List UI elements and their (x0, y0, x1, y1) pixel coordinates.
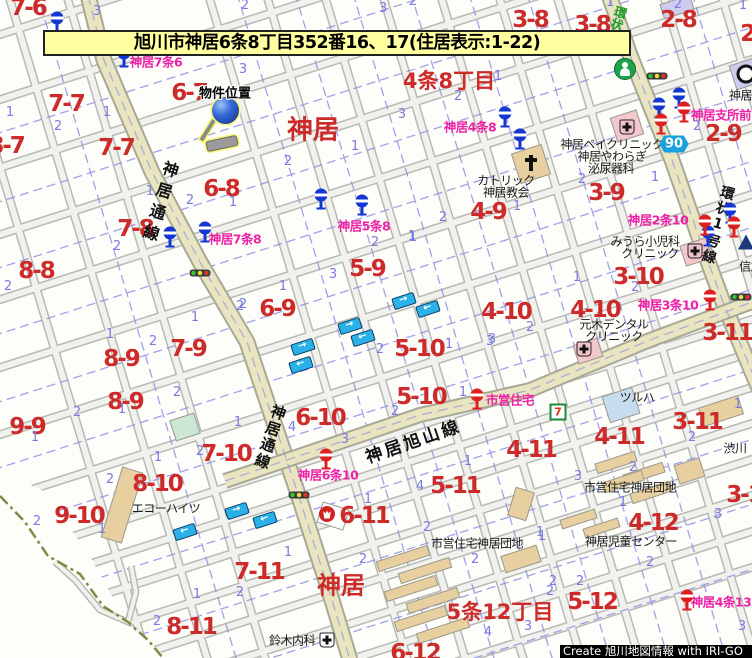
lot-number: 2 (578, 173, 586, 187)
lot-number: 3 (738, 620, 746, 634)
lot-number: 2 (33, 515, 41, 529)
lot-number: 3 (398, 108, 406, 122)
block-label: 7-11 (234, 560, 284, 584)
lot-number: 1 (538, 530, 546, 544)
block-label: 3-11 (702, 321, 752, 345)
district-label: 5条12丁目 (447, 601, 554, 623)
lot-number: 2 (73, 406, 81, 420)
block-label: 8-9 (103, 347, 139, 371)
lot-number: 2 (186, 194, 194, 208)
lot-number: 1 (234, 416, 242, 430)
lot-number: 3 (93, 5, 101, 19)
lot-number: 3 (574, 470, 582, 484)
lot-number: 1 (619, 496, 627, 510)
district-label: 神居 (287, 117, 339, 144)
block-label: 2-7 (740, 22, 752, 46)
block-label: 3-9 (588, 181, 624, 205)
lot-number: 1 (103, 106, 111, 120)
block-label: 4-9 (470, 200, 506, 224)
block-label: 6-12 (390, 641, 440, 658)
lot-number: 2 (284, 155, 292, 169)
busstop-label: 神居6条10 (298, 468, 359, 481)
lot-number: 2 (631, 281, 639, 295)
traffic-light-icon (289, 492, 310, 499)
bus-stop-red-icon (325, 449, 328, 470)
block-label: 5-10 (394, 337, 444, 361)
fire-station-icon (319, 506, 335, 522)
bus-stop-red-icon (476, 389, 479, 410)
lot-number: 4 (416, 480, 424, 494)
lot-number: 2 (526, 321, 534, 335)
lot-number: 1 (573, 271, 581, 285)
lot-number: 1 (146, 185, 154, 199)
lot-number: 2 (454, 90, 462, 104)
block-label: 4-11 (506, 438, 556, 462)
busstop-label: 市営住宅 (486, 393, 534, 406)
lot-number: 2 (674, 0, 682, 12)
lot-number: 2 (241, 0, 249, 13)
map-container[interactable]: 4条8丁目5条12丁目神居神居7-63-83-82-82-77-76-78-77… (0, 0, 752, 658)
bus-stop-blue-icon (707, 226, 710, 247)
lot-number: 1 (464, 455, 472, 469)
poi-label: 神居児童センター (585, 536, 677, 549)
block-label: 5-10 (396, 385, 446, 409)
bus-stop-red-icon (686, 590, 689, 611)
block-label: 4-12 (628, 511, 678, 535)
lot-number: 2 (371, 236, 379, 250)
lot-number: 1 (98, 523, 106, 537)
block-label: 3-8 (512, 8, 548, 32)
block-label: 7-7 (98, 136, 134, 160)
poi-label: クリニック (585, 331, 643, 344)
lot-number: 1 (494, 70, 502, 84)
busstop-label: 神居3条10 (638, 298, 699, 311)
lot-number: 1 (606, 0, 614, 10)
lot-number: 3 (239, 63, 247, 77)
lot-number: 2 (629, 461, 637, 475)
monument-triangle-icon (738, 235, 752, 250)
busstop-label: 神居4条13 (691, 595, 752, 608)
lot-number: 1 (364, 493, 372, 507)
park-icon (614, 58, 636, 80)
lot-number: 1 (31, 431, 39, 445)
lot-number: 2 (106, 473, 114, 487)
lot-number: 3 (329, 268, 337, 282)
lot-number: 1 (651, 171, 659, 185)
lot-number: 1 (279, 280, 287, 294)
lot-number: 3 (341, 433, 349, 447)
bus-stop-blue-icon (204, 222, 207, 243)
lot-number: 2 (113, 240, 121, 254)
poi-label: 市営住宅神居団地 (584, 482, 676, 495)
district-label: 4条8丁目 (403, 70, 495, 92)
lot-number: 2 (688, 431, 696, 445)
lot-number: 2 (439, 211, 447, 225)
block-label: 3-12 (726, 483, 752, 507)
lot-number: 3 (488, 333, 496, 347)
lot-number: 2 (359, 553, 367, 567)
busstop-label: 神居7条6 (130, 55, 182, 68)
block-label: 7-7 (48, 92, 84, 116)
block-label: 7-9 (170, 337, 206, 361)
lot-number: 2 (471, 553, 479, 567)
lot-number: 3 (524, 620, 532, 634)
block-label: 5-9 (349, 257, 385, 281)
lot-number: 2 (153, 615, 161, 629)
bus-stop-blue-icon (504, 107, 507, 128)
block-label: 5-12 (567, 590, 617, 614)
poi-label: 泌尿器科 (588, 163, 634, 176)
poi-label: ツルハ (620, 392, 655, 405)
busstop-label: 神居4条8 (444, 120, 496, 133)
block-label: 7-10 (201, 442, 251, 466)
lot-number: 1 (154, 451, 162, 465)
lot-number: 1 (513, 200, 521, 214)
lot-number: 2 (409, 0, 417, 9)
lot-number: 2 (4, 280, 12, 294)
hospital-icon (577, 342, 592, 357)
lot-number: 1 (284, 546, 292, 560)
lot-number: 1 (459, 386, 467, 400)
busstop-label: 神居7条8 (209, 232, 261, 245)
hospital-icon (620, 120, 635, 135)
lot-number: 4 (288, 421, 296, 435)
property-location-label: 物件位置 (199, 83, 251, 102)
poi-label: 鈴木内科 (269, 635, 315, 648)
block-label: 4-11 (594, 425, 644, 449)
bus-stop-red-icon (709, 290, 712, 311)
lot-number: 2 (546, 585, 554, 599)
busstop-label: 神居2条10 (628, 213, 689, 226)
block-label: 6-10 (295, 406, 345, 430)
block-label: 5-11 (430, 474, 480, 498)
block-label: 6-11 (339, 504, 389, 528)
poi-label: クリニック (621, 248, 679, 261)
lot-number: 1 (445, 338, 453, 352)
poi-label: 神居教会 (483, 187, 529, 200)
lot-number: 1 (6, 106, 14, 120)
lot-number: 2 (54, 120, 62, 134)
lot-number: 1 (193, 588, 201, 602)
block-label: 9-10 (54, 504, 104, 528)
lot-number: 2 (236, 300, 244, 314)
lot-number: 3 (714, 508, 722, 522)
bus-stop-red-icon (704, 215, 707, 236)
hospital-icon (688, 244, 703, 259)
church-cross-icon (529, 155, 533, 171)
government-office-icon (737, 65, 752, 84)
lot-number: 1 (409, 231, 417, 245)
bus-stop-blue-icon (519, 129, 522, 150)
credit-bar: Create 旭川地図情報 with IRI-GO (560, 645, 752, 658)
block-label: 7-6 (10, 0, 46, 20)
block-label: 8-11 (166, 615, 216, 639)
hospital-white-icon (320, 633, 335, 648)
traffic-light-icon (731, 294, 752, 301)
poi-label: 渋川 (723, 443, 746, 456)
lot-number: 1 (106, 328, 114, 342)
lot-number: 4 (484, 626, 492, 640)
seven-eleven-icon: 7 (550, 404, 567, 421)
bus-stop-red-icon (733, 217, 736, 238)
bus-stop-red-icon (660, 114, 663, 135)
lot-number: 2 (576, 575, 584, 589)
traffic-light-icon (190, 270, 211, 277)
address-banner: 旭川市神居6条8丁目352番16、17(住居表示:1-22) (43, 30, 631, 56)
lot-number: 1 (734, 398, 742, 412)
block-label: 4-10 (481, 300, 531, 324)
lot-number: 1 (739, 0, 747, 13)
lot-number: 2 (693, 120, 701, 134)
block-label: 2-9 (705, 122, 741, 146)
block-label: 6-9 (259, 297, 295, 321)
bus-stop-red-icon (683, 102, 686, 123)
lot-number: 1 (229, 196, 237, 210)
lot-number: 1 (118, 403, 126, 417)
lot-number: 3 (379, 2, 387, 16)
lot-number: 2 (376, 343, 384, 357)
poi-label: 市営住宅神居団地 (431, 538, 523, 551)
lot-number: 2 (173, 386, 181, 400)
block-label: 9-9 (9, 415, 45, 439)
lot-number: 1 (191, 311, 199, 325)
lot-number: 2 (646, 556, 654, 570)
poi-label: エコーハイツ (132, 503, 201, 516)
block-label: 3-11 (672, 410, 722, 434)
lot-number: 1 (351, 140, 359, 154)
traffic-light-icon (647, 73, 668, 80)
block-label: 8-8 (18, 259, 54, 283)
lot-number: 2 (196, 445, 204, 459)
lot-number: 2 (236, 586, 244, 600)
lot-number: 2 (391, 405, 399, 419)
poi-label: 神居支所 (729, 90, 752, 103)
busstop-label: 神居5条8 (338, 219, 390, 232)
bus-stop-blue-icon (361, 195, 364, 216)
block-label: 8-10 (132, 472, 182, 496)
lot-number: 2 (423, 521, 431, 535)
bus-stop-blue-icon (320, 189, 323, 210)
district-label: 神居 (317, 573, 365, 598)
poi-label: 信用金庫 (739, 261, 752, 274)
lot-number: 2 (149, 335, 157, 349)
bus-stop-blue-icon (169, 227, 172, 248)
block-label: 8-7 (0, 134, 24, 158)
